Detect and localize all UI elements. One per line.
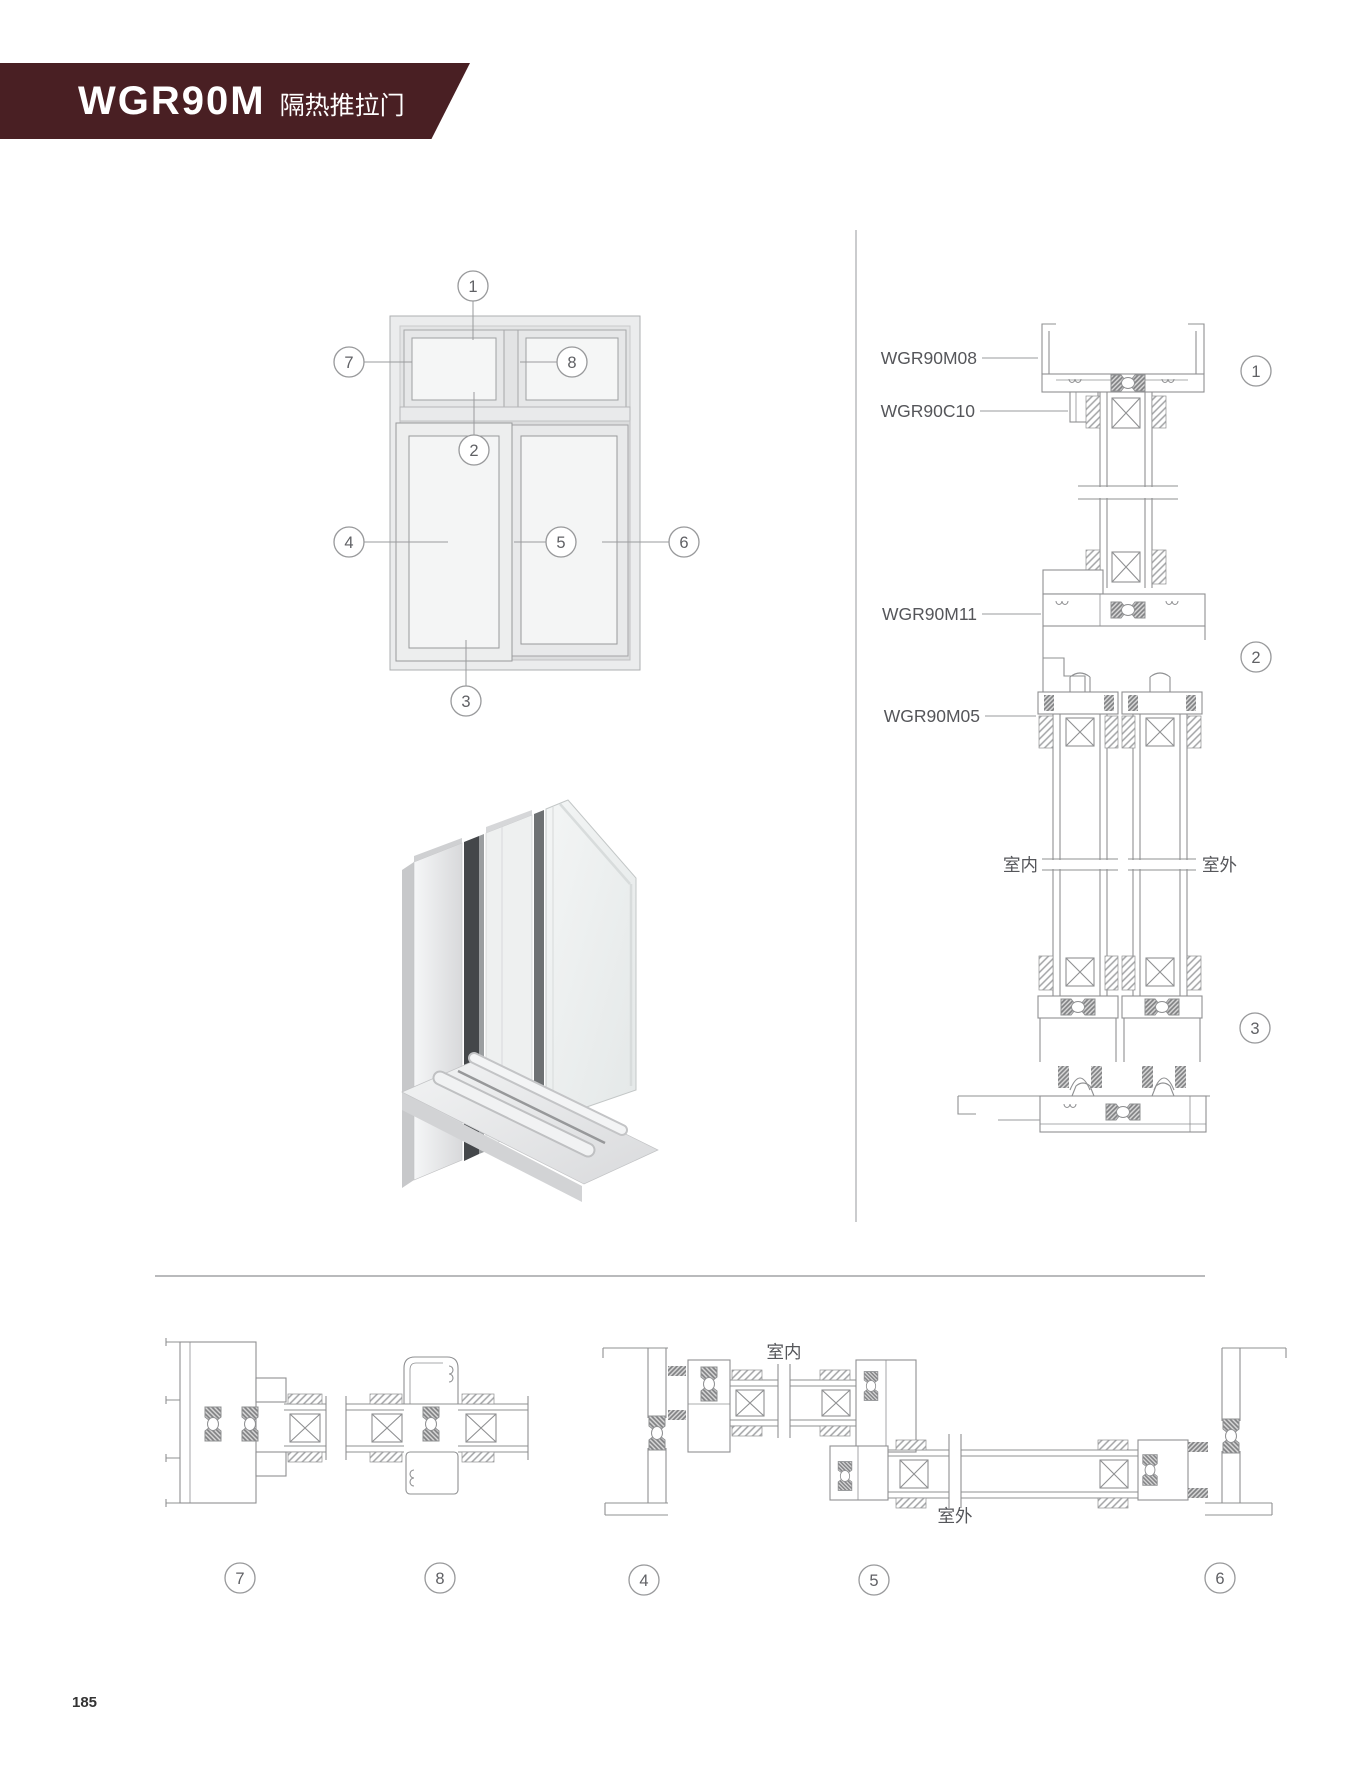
label-wgr90m08: WGR90M08	[881, 348, 977, 368]
section-fixed-glazing	[1078, 392, 1178, 588]
horizontal-divider	[155, 1275, 1205, 1277]
svg-text:8: 8	[435, 1570, 444, 1588]
label-indoor-vertical: 室内	[1003, 855, 1038, 875]
vertical-section-diagram: WGR90M08 WGR90C10 WGR90M11 WGR90M05 室内 室…	[860, 260, 1280, 1150]
render-glazing-gasket	[534, 810, 544, 1126]
section-bottom-track	[958, 1083, 1210, 1132]
elevation-callout-1: 1	[458, 271, 488, 301]
elevation-callout-5: 5	[546, 527, 576, 557]
svg-text:6: 6	[679, 534, 688, 552]
svg-text:2: 2	[469, 442, 478, 460]
hsection-4-left-jamb	[603, 1348, 856, 1515]
profile-3d-render	[390, 790, 660, 1210]
render-jamb-side	[402, 862, 414, 1188]
hsection-callout-6: 6	[1205, 1563, 1235, 1593]
vertical-divider	[855, 230, 857, 1222]
svg-text:5: 5	[556, 534, 565, 552]
section-callout-3: 3	[1240, 1013, 1270, 1043]
svg-text:4: 4	[639, 1572, 648, 1590]
product-subtitle: 隔热推拉门	[280, 86, 405, 122]
label-wgr90c10: WGR90C10	[881, 401, 976, 421]
hsection-callout-4: 4	[629, 1565, 659, 1595]
svg-text:4: 4	[344, 534, 353, 552]
elevation-callout-8: 8	[557, 347, 587, 377]
section-sash-exterior	[1122, 673, 1202, 1090]
elevation-callout-2: 2	[459, 435, 489, 465]
svg-text:8: 8	[567, 354, 576, 372]
svg-text:1: 1	[468, 278, 477, 296]
section-callout-1: 1	[1241, 356, 1271, 386]
header-banner: WGR90M 隔热推拉门	[0, 63, 470, 139]
elevation-callout-3: 3	[451, 686, 481, 716]
hsection-callout-8: 8	[425, 1563, 455, 1593]
transom-mullion	[504, 330, 518, 408]
svg-text:6: 6	[1215, 1570, 1224, 1588]
hsection-7-jamb-fixed	[166, 1338, 326, 1507]
svg-text:2: 2	[1251, 649, 1260, 667]
elevation-callout-4: 4	[334, 527, 364, 557]
label-indoor-horizontal: 室内	[767, 1342, 802, 1362]
glass-break-mark	[1078, 487, 1178, 498]
section-transom-rail	[1043, 570, 1205, 700]
hsection-6-right-jamb	[1138, 1348, 1286, 1515]
elevation-callout-6: 6	[669, 527, 699, 557]
section-sash-interior	[1038, 673, 1118, 1090]
transom-panel-left-glass	[412, 338, 496, 400]
render-glass-pane	[546, 800, 636, 1121]
hsection-callout-5: 5	[859, 1565, 889, 1595]
catalog-page: WGR90M 隔热推拉门 1 7 8 2 4 5 6 3	[0, 0, 1359, 1771]
elevation-callout-7: 7	[334, 347, 364, 377]
section-callout-2: 2	[1241, 642, 1271, 672]
product-model: WGR90M	[78, 79, 266, 124]
hsection-callout-7: 7	[225, 1563, 255, 1593]
svg-text:3: 3	[1250, 1020, 1259, 1038]
label-outdoor-vertical: 室外	[1202, 855, 1237, 875]
label-wgr90m05: WGR90M05	[884, 706, 980, 726]
svg-text:3: 3	[461, 693, 470, 711]
hsection-8-mullion	[346, 1357, 528, 1494]
page-number: 185	[72, 1694, 97, 1711]
label-outdoor-horizontal: 室外	[938, 1506, 973, 1526]
horizontal-sections-diagram: 室内 室外 7 8 4 5 6	[150, 1330, 1310, 1600]
svg-text:7: 7	[344, 354, 353, 372]
label-wgr90m11: WGR90M11	[882, 604, 977, 624]
hsection-5-interlock	[830, 1360, 1140, 1508]
svg-text:7: 7	[235, 1570, 244, 1588]
svg-text:1: 1	[1251, 363, 1260, 381]
door-elevation-diagram: 1 7 8 2 4 5 6 3	[280, 230, 720, 730]
svg-text:5: 5	[869, 1572, 878, 1590]
transom-rail	[400, 407, 630, 421]
